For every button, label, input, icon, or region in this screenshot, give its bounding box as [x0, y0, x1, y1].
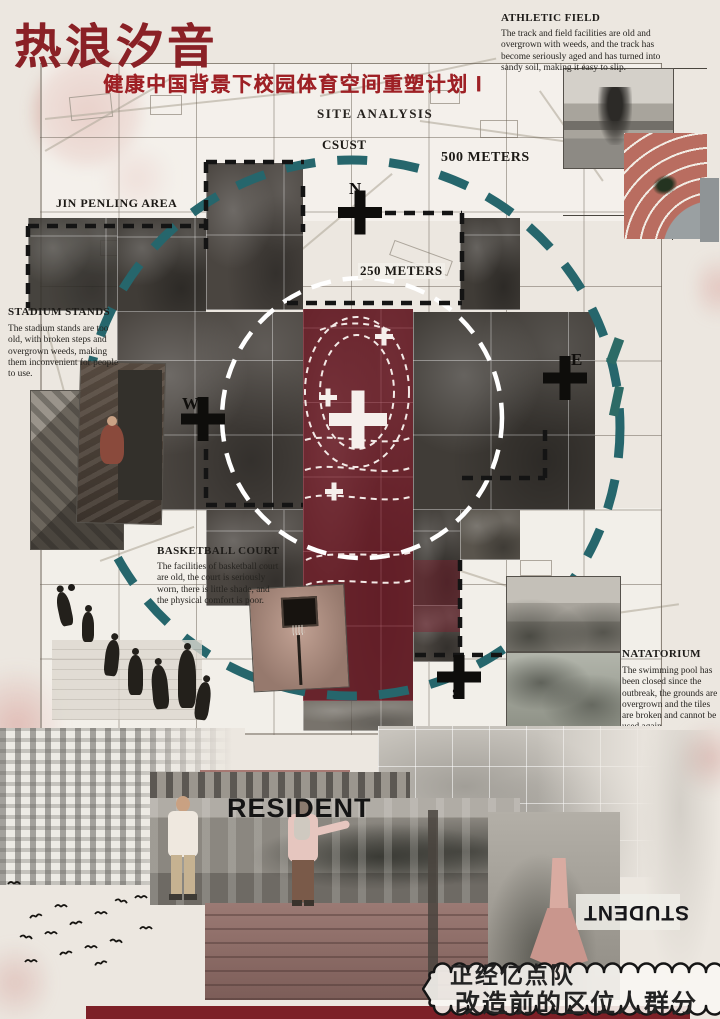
section-label: SITE ANALYSIS: [317, 106, 433, 122]
player-silhouette: [82, 612, 94, 642]
player-silhouette: [178, 650, 196, 708]
hoop-net: [292, 625, 305, 636]
compass-e-label: E: [571, 350, 582, 370]
label-500-meters: 500 METERS: [441, 150, 530, 166]
stadium-stands-body: The stadium stands are too old, with bro…: [8, 324, 120, 380]
poster-subtitle: 健康中国背景下校园体育空间重塑计划 Ⅰ: [103, 68, 483, 97]
player-silhouette: [128, 655, 143, 695]
resident-label: RESIDENT: [227, 793, 372, 824]
satellite-patch: [206, 163, 303, 310]
stands-photo-dark: [118, 370, 162, 500]
stadium-stands-title: STADIUM STANDS: [8, 306, 110, 318]
woman-shoes: [292, 900, 302, 906]
basketball-court-title: BASKETBALL COURT: [157, 545, 279, 557]
pink-wash-blob: [695, 245, 720, 330]
person-photo: [100, 424, 124, 464]
campus-focus-zone-extension: [413, 560, 460, 632]
satellite-patch: [413, 312, 595, 510]
sprinter-figure: [649, 171, 680, 199]
man-shirt: [168, 811, 198, 857]
label-jin-penling-area: JIN PENLING AREA: [56, 196, 177, 211]
birds-flock: [0, 868, 175, 983]
student-label: STUDENT: [583, 900, 689, 924]
man-head: [176, 796, 190, 812]
man-pants: [184, 855, 195, 895]
label-csust: CSUST: [322, 137, 366, 153]
natatorium-photo: [506, 652, 621, 728]
site-analysis-poster: CSUST 500 METERS 250 METERS JIN PENLING …: [0, 0, 720, 1019]
poster-title: 热浪汐音: [14, 8, 218, 77]
natatorium-title: NATATORIUM: [622, 648, 701, 660]
compass-n-label: N: [349, 179, 361, 199]
gray-bar: [700, 178, 719, 242]
woman-pants: [292, 860, 314, 902]
satellite-patch: [28, 218, 117, 311]
basketball-icon: [68, 584, 75, 591]
athletic-field-body: The track and field facilities are old a…: [501, 29, 661, 74]
stadium-strip: [564, 121, 673, 130]
natatorium-body: The swimming pool has been closed since …: [622, 666, 718, 734]
basketball-court-body: The facilities of basketball court are o…: [157, 562, 283, 607]
hoop-pole: [297, 635, 303, 685]
person-photo-head: [107, 416, 117, 426]
man-shoes: [184, 894, 197, 900]
satellite-patch: [460, 510, 520, 560]
woman-shoes: [304, 900, 314, 906]
label-250-meters: 250 METERS: [358, 263, 445, 279]
satellite-patch: [460, 218, 520, 310]
inverted-legs: [548, 858, 570, 916]
compass-s-label: S: [452, 686, 460, 703]
backboard: [281, 596, 319, 628]
compass-w-label: W: [182, 394, 199, 414]
athletic-field-title: ATHLETIC FIELD: [501, 12, 600, 24]
running-track-photo: [624, 133, 707, 239]
bubble-caption: 改造前的区位人群分析: [455, 984, 720, 1019]
satellite-patch: [117, 218, 206, 312]
school-building-photo: [506, 576, 621, 652]
